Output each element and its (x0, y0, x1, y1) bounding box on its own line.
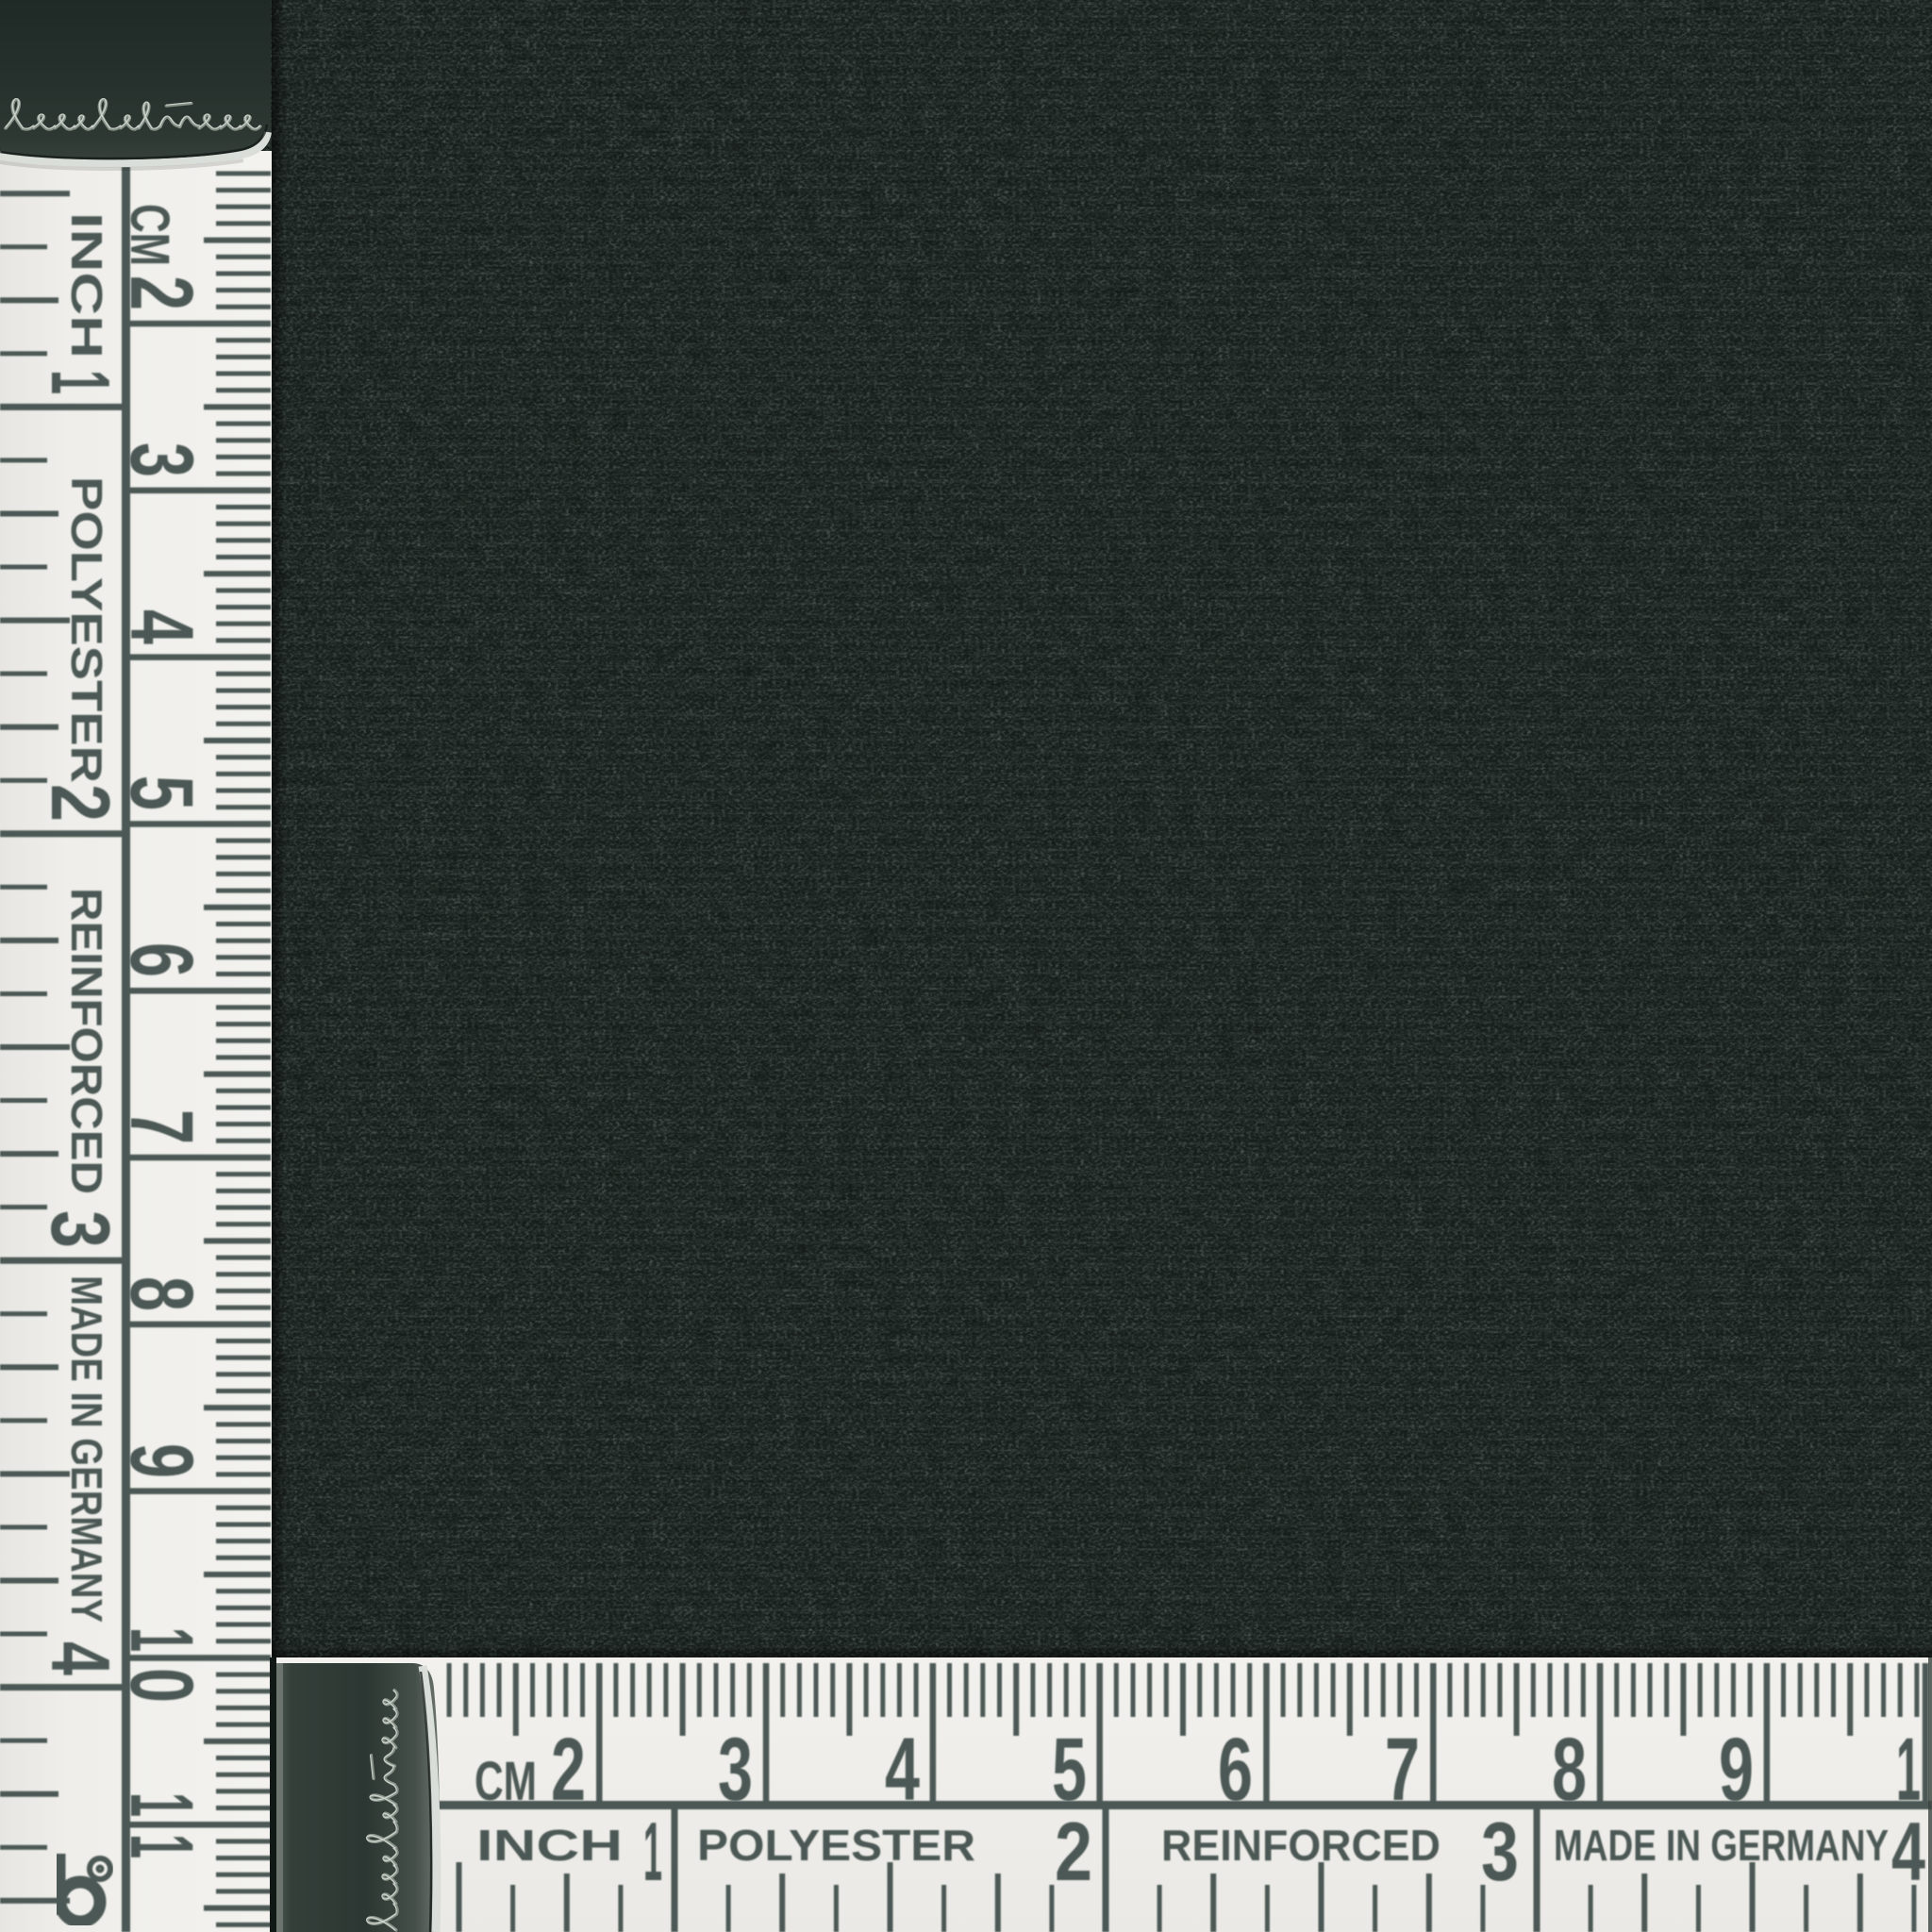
svg-text:CM: CM (119, 204, 180, 266)
svg-text:INCH: INCH (476, 1821, 623, 1870)
svg-text:7: 7 (1385, 1720, 1420, 1820)
svg-text:8: 8 (111, 1276, 211, 1311)
svg-text:9: 9 (1719, 1720, 1754, 1820)
svg-text:3: 3 (111, 442, 211, 477)
svg-text:REINFORCED: REINFORCED (62, 888, 111, 1194)
svg-text:2: 2 (551, 1720, 586, 1820)
svg-text:1: 1 (111, 1834, 211, 1858)
svg-text:7: 7 (111, 1109, 211, 1144)
svg-text:6: 6 (1218, 1720, 1253, 1820)
svg-text:4: 4 (111, 609, 211, 644)
svg-text:1: 1 (34, 370, 127, 394)
svg-text:4: 4 (34, 1641, 127, 1675)
svg-text:9: 9 (111, 1443, 211, 1478)
svg-text:8: 8 (1552, 1720, 1587, 1820)
svg-text:4: 4 (1891, 1805, 1925, 1898)
svg-text:REINFORCED: REINFORCED (1161, 1821, 1441, 1870)
svg-text:CM: CM (475, 1751, 537, 1812)
svg-text:2: 2 (34, 784, 127, 822)
svg-text:3: 3 (34, 1210, 127, 1248)
svg-text:POLYESTER: POLYESTER (62, 476, 111, 783)
svg-text:MADE IN GERMANY: MADE IN GERMANY (62, 1275, 111, 1623)
svg-text:1: 1 (111, 1792, 211, 1817)
svg-text:2: 2 (111, 275, 211, 310)
svg-text:MADE IN GERMANY: MADE IN GERMANY (1554, 1821, 1889, 1870)
svg-text:3: 3 (718, 1720, 753, 1820)
svg-text:INCH: INCH (62, 212, 111, 358)
svg-text:6: 6 (111, 942, 211, 977)
svg-text:1: 1 (643, 1805, 662, 1898)
svg-text:2: 2 (1055, 1805, 1092, 1898)
svg-text:3: 3 (1481, 1805, 1519, 1898)
svg-text:POLYESTER: POLYESTER (697, 1821, 975, 1870)
svg-text:4: 4 (885, 1720, 920, 1820)
